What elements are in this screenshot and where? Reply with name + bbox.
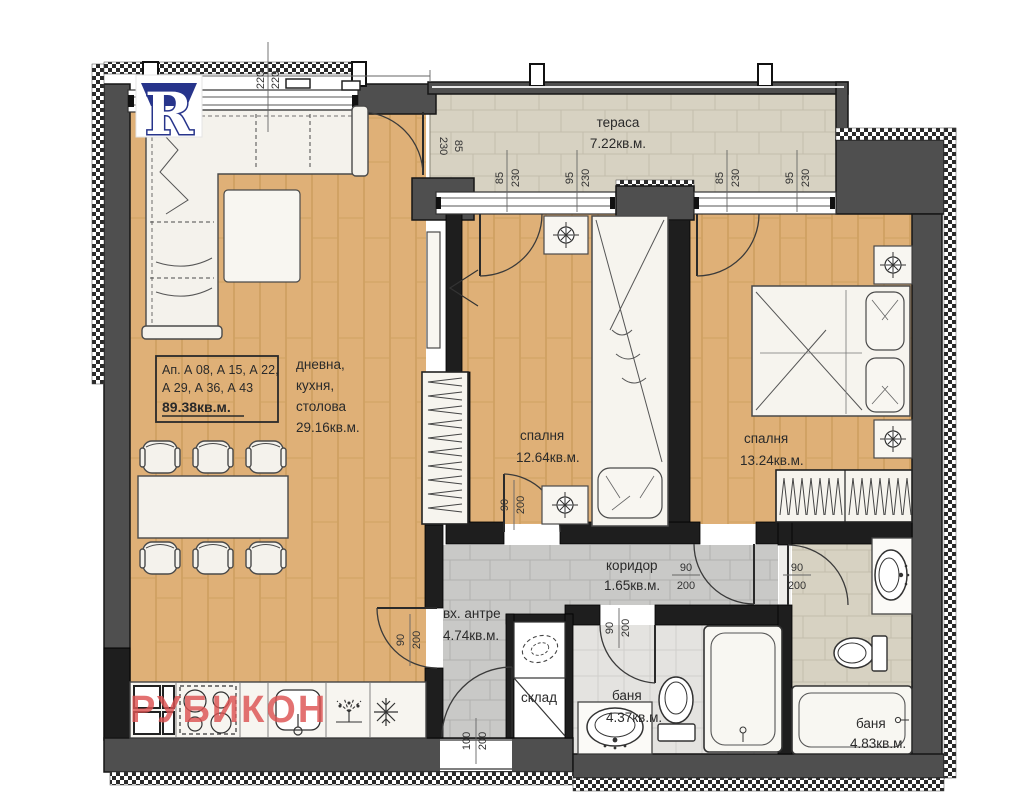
svg-text:230: 230	[730, 169, 742, 187]
living-name-2: кухня,	[296, 378, 334, 393]
svg-text:90: 90	[680, 562, 692, 574]
svg-text:230: 230	[437, 137, 449, 155]
wardrobe-bedroom2	[776, 470, 912, 522]
svg-text:85: 85	[494, 172, 506, 184]
bath1-name: баня	[612, 688, 642, 703]
corridor-name: коридор	[606, 558, 658, 573]
svg-text:90: 90	[395, 634, 407, 646]
svg-text:100: 100	[461, 732, 473, 750]
entry-area: 4.74кв.м.	[443, 628, 499, 643]
double-bed	[752, 286, 910, 416]
svg-text:220: 220	[270, 71, 282, 89]
toilet-icon	[658, 677, 695, 741]
pillow	[598, 468, 662, 518]
svg-text:200: 200	[677, 580, 695, 592]
pillow	[866, 358, 904, 412]
wardrobe-bedroom1	[422, 372, 468, 524]
coffee-table	[224, 190, 300, 282]
floor-plan-svg: тераса 7.22кв.м. Ап. А 08, А 15, А 22, А…	[0, 0, 1011, 807]
svg-text:85: 85	[452, 140, 464, 152]
svg-text:230: 230	[510, 169, 522, 187]
washing-machine-icon	[514, 622, 565, 678]
svg-text:220: 220	[255, 71, 267, 89]
bath2-area: 4.83кв.м.	[850, 736, 906, 751]
svg-text:200: 200	[411, 631, 423, 649]
pillow	[866, 292, 904, 350]
section-marker	[342, 81, 360, 90]
dining-chair	[193, 542, 233, 574]
dining-set	[138, 441, 288, 574]
bedroom1-window	[436, 192, 616, 214]
corridor-area: 1.65кв.м.	[604, 578, 660, 593]
svg-text:200: 200	[788, 580, 806, 592]
svg-text:230: 230	[580, 169, 592, 187]
svg-text:90: 90	[791, 562, 803, 574]
bedroom2-furniture	[752, 246, 912, 522]
storage-name: склад	[521, 690, 557, 705]
railing-post	[758, 64, 772, 86]
info-line1: Ап. А 08, А 15, А 22,	[162, 363, 279, 377]
window-pier	[616, 186, 694, 220]
dining-table	[138, 476, 288, 538]
logo: R	[136, 75, 202, 148]
single-bed	[592, 216, 668, 526]
dining-chair	[246, 441, 286, 473]
living-name-1: дневна,	[296, 357, 345, 372]
watermark-text: РУБИКОН	[130, 689, 327, 731]
dining-chair	[193, 441, 233, 473]
bedroom2-name: спалня	[744, 431, 788, 446]
svg-text:85: 85	[714, 172, 726, 184]
bedroom2-window	[694, 192, 836, 214]
info-area: 89.38кв.м.	[162, 399, 231, 415]
entry-name: вх. антре	[443, 606, 501, 621]
living-area: 29.16кв.м.	[296, 420, 360, 435]
bath2-name: баня	[856, 716, 886, 731]
info-line2: А 29, А 36, А 43	[162, 381, 253, 395]
svg-text:200: 200	[620, 619, 632, 637]
svg-text:95: 95	[564, 172, 576, 184]
bedroom1-name: спалня	[520, 428, 564, 443]
dining-chair	[246, 542, 286, 574]
dining-chair	[140, 542, 180, 574]
tv-unit	[427, 232, 440, 348]
svg-text:200: 200	[477, 732, 489, 750]
terrace-name: тераса	[597, 115, 640, 130]
dining-chair	[140, 441, 180, 473]
terrace-area: 7.22кв.м.	[590, 136, 646, 151]
section-marker	[286, 79, 310, 88]
logo-letter: R	[145, 80, 194, 148]
toilet-icon	[834, 636, 887, 671]
svg-text:90: 90	[604, 622, 616, 634]
svg-text:90: 90	[499, 499, 511, 511]
bedroom2-area: 13.24кв.м.	[740, 453, 804, 468]
bedroom1-area: 12.64кв.м.	[516, 450, 580, 465]
bath1-area: 4.37кв.м.	[606, 710, 662, 725]
svg-text:230: 230	[800, 169, 812, 187]
sink-icon	[872, 538, 912, 614]
floor-plan: тераса 7.22кв.м. Ап. А 08, А 15, А 22, А…	[0, 0, 1011, 807]
svg-text:95: 95	[784, 172, 796, 184]
railing-post	[530, 64, 544, 86]
living-name-3: столова	[296, 399, 347, 414]
svg-text:200: 200	[515, 496, 527, 514]
bathtub-icon	[704, 626, 782, 752]
